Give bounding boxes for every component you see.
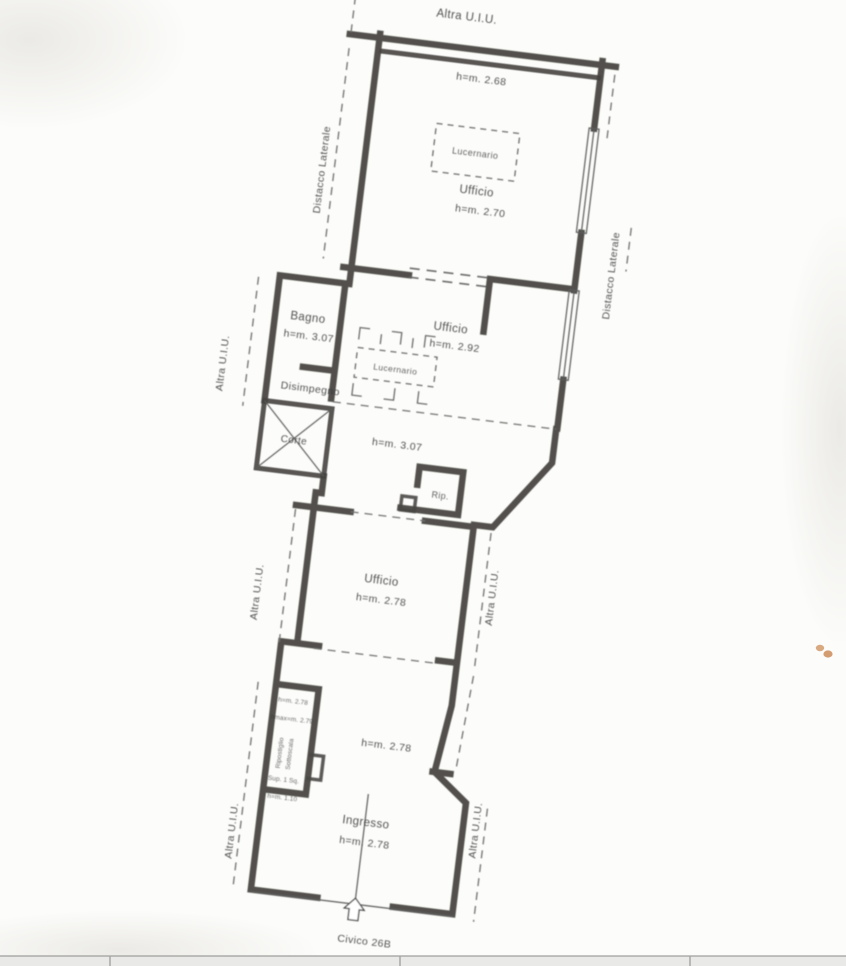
room-label-rip: Rip.: [431, 490, 450, 502]
floor-plan-svg: Altra U.I.U. h=m. 2.68 Lucernario Uffici…: [0, 0, 846, 966]
footer-table-band: [0, 956, 846, 966]
scanned-floor-plan-page: Altra U.I.U. h=m. 2.68 Lucernario Uffici…: [0, 0, 846, 966]
paper-background: [0, 0, 846, 966]
